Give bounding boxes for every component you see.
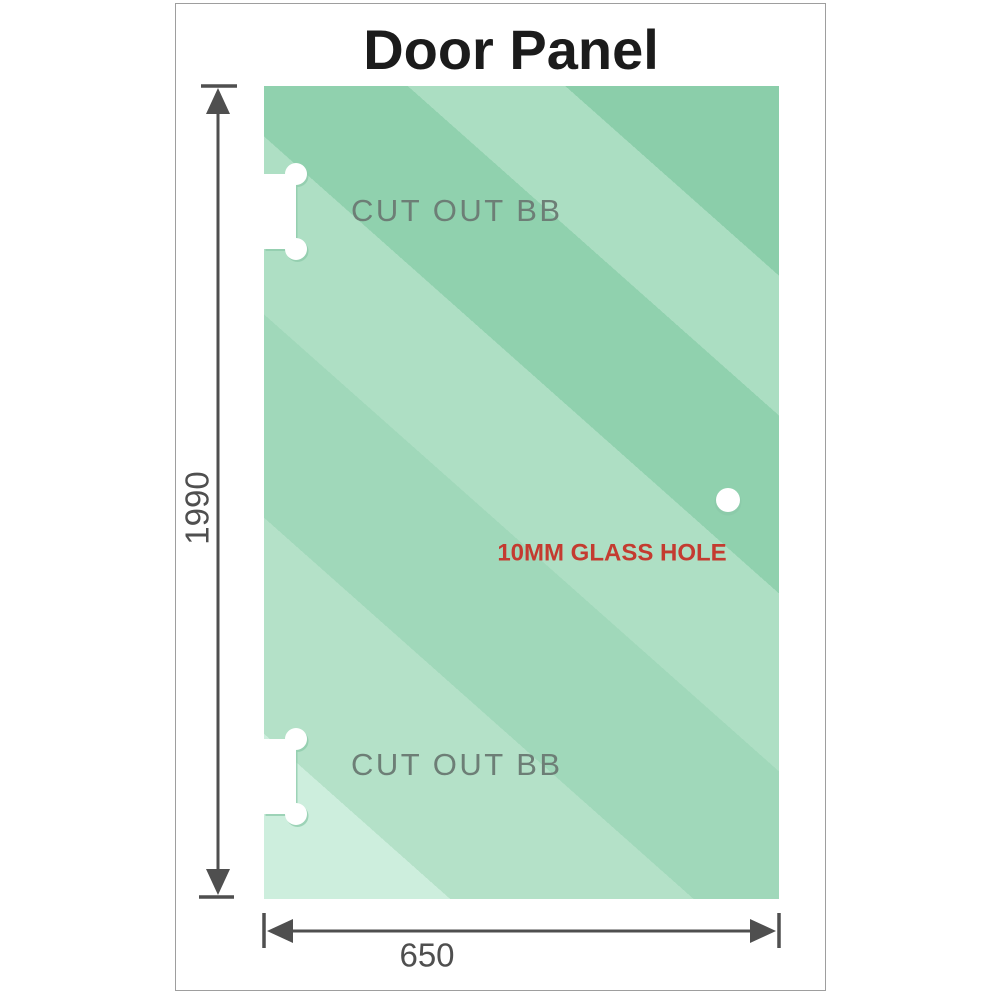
door-panel-diagram: Door Panel CUT OUT BB CUT OUT BB 10MM GL… <box>176 4 827 992</box>
right-arrowhead-icon <box>750 919 776 943</box>
left-arrowhead-icon <box>267 919 293 943</box>
glass-hole-label: 10MM GLASS HOLE <box>497 539 726 566</box>
cutout-label-top: CUT OUT BB <box>351 193 563 228</box>
diagram-frame: Door Panel CUT OUT BB CUT OUT BB 10MM GL… <box>175 3 826 991</box>
page-title: Door Panel <box>363 18 659 81</box>
cutout-label-bottom: CUT OUT BB <box>351 747 563 782</box>
up-arrowhead-icon <box>206 88 230 114</box>
height-dimension-value: 1990 <box>179 471 216 544</box>
down-arrowhead-icon <box>206 869 230 895</box>
width-dimension-value: 650 <box>399 937 454 974</box>
glass-hole <box>716 488 740 512</box>
width-dimension <box>264 913 779 948</box>
page-background: Door Panel CUT OUT BB CUT OUT BB 10MM GL… <box>0 0 1000 1000</box>
